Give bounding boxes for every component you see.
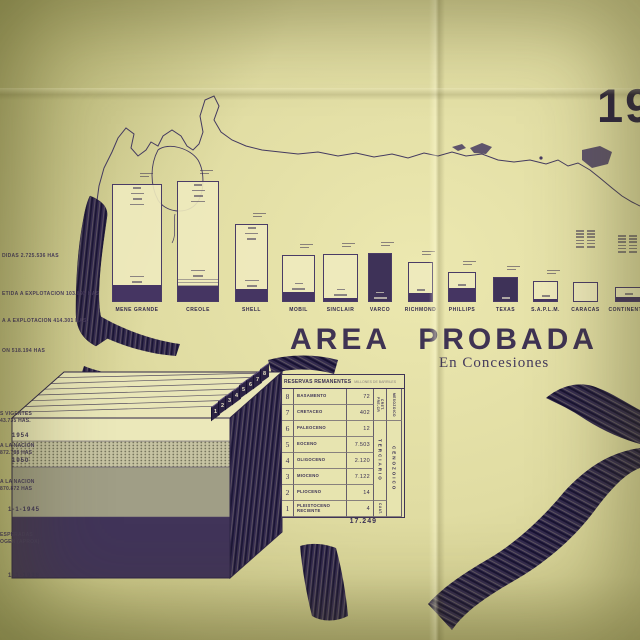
concession-bar-chart: MENE GRANDECREOLESHELLMOBILSINCLAIRVARCO… [0, 0, 640, 640]
fine-print-mark [547, 273, 556, 275]
fine-print-mark [576, 230, 584, 232]
table-grid: 8BASAMENTO727CRETACEO4026PALEOCENO125EOC… [282, 389, 404, 517]
era-label-cell: CENOZOICO [387, 421, 402, 517]
bar-label: MOBIL [289, 307, 308, 313]
year-fragment: 19 [597, 78, 640, 133]
bar-mobil [282, 255, 315, 302]
era-label-cell: CUAT. [374, 501, 387, 517]
purple-band [178, 286, 218, 301]
layer-tab-number: 8 [263, 371, 266, 377]
purple-band [236, 289, 267, 301]
fine-print-mark [253, 213, 266, 215]
fine-print-mark [374, 297, 387, 299]
fine-print-mark [417, 289, 425, 291]
stratum-name: PLEISTOCENO RECIENTE [294, 501, 347, 517]
purple-band [283, 292, 314, 301]
fine-print-mark [140, 176, 149, 178]
stratum-name: EOCENO [294, 437, 347, 453]
bar-label: SHELL [242, 307, 261, 313]
annotation-518194: ON 518.194 HAS [2, 348, 45, 354]
fine-print-mark [130, 276, 144, 278]
reserve-value: 14 [347, 485, 374, 501]
era-label-cell: PRE-CRCRET. [374, 389, 387, 421]
fine-print-mark [576, 233, 584, 235]
fine-print-mark [629, 238, 637, 240]
year-1954: 1954 [12, 433, 29, 439]
fine-print-mark [133, 198, 142, 200]
reserve-value: 4 [347, 501, 374, 517]
stratum-name: PALEOCENO [294, 421, 347, 437]
reserve-value: 12 [347, 421, 374, 437]
fine-print-mark [587, 230, 595, 232]
fine-print-mark [337, 289, 345, 291]
fine-print-mark [245, 233, 258, 235]
fine-print-caption [463, 259, 476, 267]
fine-print-mark [629, 251, 637, 253]
fine-print-mark [618, 245, 626, 247]
stratum-name: MIOCENO [294, 469, 347, 485]
stratum-name: OLIGOCENO [294, 453, 347, 469]
fine-print-mark [295, 283, 303, 285]
bar-s-a-p-l-m- [533, 281, 558, 302]
bar-varco [368, 253, 392, 302]
fine-print-caption [300, 242, 313, 250]
fine-print-mark [253, 216, 262, 218]
table-total: 17.249 [281, 518, 377, 525]
fine-print-mark [587, 243, 595, 245]
fine-print-caption [547, 268, 560, 276]
fine-print-mark [502, 297, 510, 299]
fine-print-mark [422, 254, 431, 256]
fine-print-mark [587, 240, 595, 242]
fine-print-mark [463, 264, 472, 266]
stratum-name: PLIOCENO [294, 485, 347, 501]
fine-print-caption [342, 241, 355, 249]
fine-print-mark [334, 294, 347, 296]
fine-print-mark [132, 281, 142, 283]
thin-strata-lines [178, 279, 218, 286]
fine-print-mark [542, 295, 550, 297]
era-label: CRET. [380, 399, 384, 411]
reserve-value: 2.120 [347, 453, 374, 469]
reserve-value: 7.122 [347, 469, 374, 485]
poster-title: AREA PROBADA [290, 323, 598, 357]
fine-print-mark [200, 173, 209, 175]
bar-label: CREOLE [186, 307, 210, 313]
row-number: 4 [282, 453, 294, 469]
fine-print-mark [133, 187, 141, 189]
fine-print-mark [194, 184, 202, 186]
fine-print-mark [618, 238, 626, 240]
fine-print-mark [587, 246, 595, 248]
fine-print-mark [342, 246, 351, 248]
year-1936: 1-1-1936 [8, 573, 40, 579]
row-number: 2 [282, 485, 294, 501]
row-number: 3 [282, 469, 294, 485]
fine-print-mark [629, 241, 637, 243]
fine-print-mark [507, 266, 520, 268]
reserve-value: 7.503 [347, 437, 374, 453]
fine-print-mark [300, 247, 309, 249]
fine-print-mark [193, 275, 203, 277]
table-title: RESERVAS REMANENTES [284, 379, 351, 385]
fine-print-mark [629, 235, 637, 237]
bar-mene-grande [112, 184, 162, 302]
fine-print-mark [547, 270, 560, 272]
fine-print-mark [248, 227, 256, 229]
fine-print-mark [422, 251, 435, 253]
fine-print-mark [140, 173, 153, 175]
fine-print-mark [376, 292, 384, 294]
fine-print-mark [576, 246, 584, 248]
fine-print-mark [507, 269, 516, 271]
row-number: 6 [282, 421, 294, 437]
fine-print-mark [618, 235, 626, 237]
poster-subtitle: En Concesiones [439, 355, 549, 372]
fine-print-mark [292, 288, 305, 290]
fine-print-mark [200, 170, 213, 172]
bar-phillips [448, 272, 476, 302]
bar-label: SINCLAIR [327, 307, 355, 313]
fine-print-mark [300, 244, 313, 246]
annotation-sometida-explotacion: ETIDA A EXPLOTACION 103.893 HAS [2, 291, 99, 297]
bar-label: VARCO [370, 307, 390, 313]
row-number: 1 [282, 501, 294, 517]
annotation-nacion-1950: A LA NACION 872.788 HAS [0, 443, 86, 457]
fine-print-mark [618, 248, 626, 250]
fine-print-mark [191, 270, 205, 272]
bar-texas [493, 277, 518, 302]
fine-print-mark [245, 280, 259, 282]
table-header: RESERVAS REMANENTES MILLONES DE BARRILES [282, 375, 404, 389]
bar-richmond [408, 262, 433, 302]
bar-shell [235, 224, 268, 302]
bar-label: TEXAS [496, 307, 515, 313]
row-number: 5 [282, 437, 294, 453]
fine-print-mark [629, 248, 637, 250]
era-label: CUAT. [378, 503, 382, 515]
era-label: MESOZOICO [392, 393, 396, 417]
fine-print-mark [618, 251, 626, 253]
fine-print-caption [140, 171, 153, 179]
stratum-name: CRETACEO [294, 405, 347, 421]
bar-label: CARACAS [571, 307, 600, 313]
bar-caracas [573, 282, 598, 302]
fine-print-mark [194, 195, 203, 197]
purple-band [616, 297, 640, 301]
bar-creole [177, 181, 219, 302]
table-units: MILLONES DE BARRILES [354, 380, 396, 384]
era-label-cell: TERCIARIO [374, 421, 387, 501]
reservas-remanentes-table: RESERVAS REMANENTES MILLONES DE BARRILES… [281, 374, 405, 518]
fine-print-mark [247, 238, 256, 240]
fine-print-mark [618, 241, 626, 243]
purple-band [534, 299, 557, 301]
fine-print-mark [463, 261, 476, 263]
fine-print-mark [576, 240, 584, 242]
fine-print-caption [422, 249, 435, 257]
fine-print-stack [618, 235, 637, 253]
fine-print-caption [253, 211, 266, 219]
purple-band [324, 298, 357, 301]
fine-print-mark [625, 293, 633, 295]
purple-band [409, 293, 432, 301]
annotation-area-cedida: DIDAS 2.725.536 HAS [2, 253, 59, 259]
annotation-nacion-1945: A LA NACION 870.872 HAS [0, 479, 86, 493]
fine-print-mark [192, 190, 205, 192]
bar-label: RICHMOND [405, 307, 437, 313]
era-label-cell: MESOZOICO [387, 389, 402, 421]
fine-print-mark [131, 193, 144, 195]
purple-band [449, 288, 475, 301]
fine-print-caption [200, 168, 213, 176]
bar-label: MENE GRANDE [115, 307, 158, 313]
reserve-value: 402 [347, 405, 374, 421]
fine-print-mark [342, 243, 355, 245]
annotation-esperadas: ESPERADAS OGEN (APROX) [0, 532, 86, 546]
row-number: 8 [282, 389, 294, 405]
fine-print-mark [130, 204, 144, 206]
fine-print-mark [381, 245, 390, 247]
stratum-name: BASAMENTO [294, 389, 347, 405]
bar-continental [615, 287, 640, 302]
oil-concessions-poster: 12345678 MENE GRANDECREOLESHELLMOBILSINC… [0, 0, 640, 640]
fine-print-mark [587, 236, 595, 238]
bar-sinclair [323, 254, 358, 302]
fine-print-mark [576, 243, 584, 245]
reserve-value: 72 [347, 389, 374, 405]
bar-label: S.A.P.L.M. [531, 307, 560, 313]
fine-print-mark [247, 285, 257, 287]
fine-print-mark [629, 245, 637, 247]
fine-print-stack [576, 230, 595, 248]
era-label: TERCIARIO [378, 439, 383, 482]
fine-print-mark [576, 236, 584, 238]
fine-print-mark [587, 233, 595, 235]
year-1945: 1-1-1945 [8, 507, 40, 513]
bar-label: CONTINENTAL [609, 307, 640, 313]
fine-print-mark [191, 201, 205, 203]
fine-print-mark [381, 242, 394, 244]
year-1950: 1950 [12, 458, 29, 464]
annotation-entregada-explotacion: A A EXPLOTACION 414.301 HAS. [2, 318, 88, 324]
fine-print-mark [458, 284, 466, 286]
fine-print-caption [381, 240, 394, 248]
fine-print-caption [507, 264, 520, 272]
row-number: 7 [282, 405, 294, 421]
purple-band [113, 285, 161, 301]
annotation-vigentes: S VIGENTES 43.735 HAS. [0, 411, 86, 425]
era-label: CENOZOICO [392, 446, 397, 491]
bar-label: PHILLIPS [449, 307, 476, 313]
